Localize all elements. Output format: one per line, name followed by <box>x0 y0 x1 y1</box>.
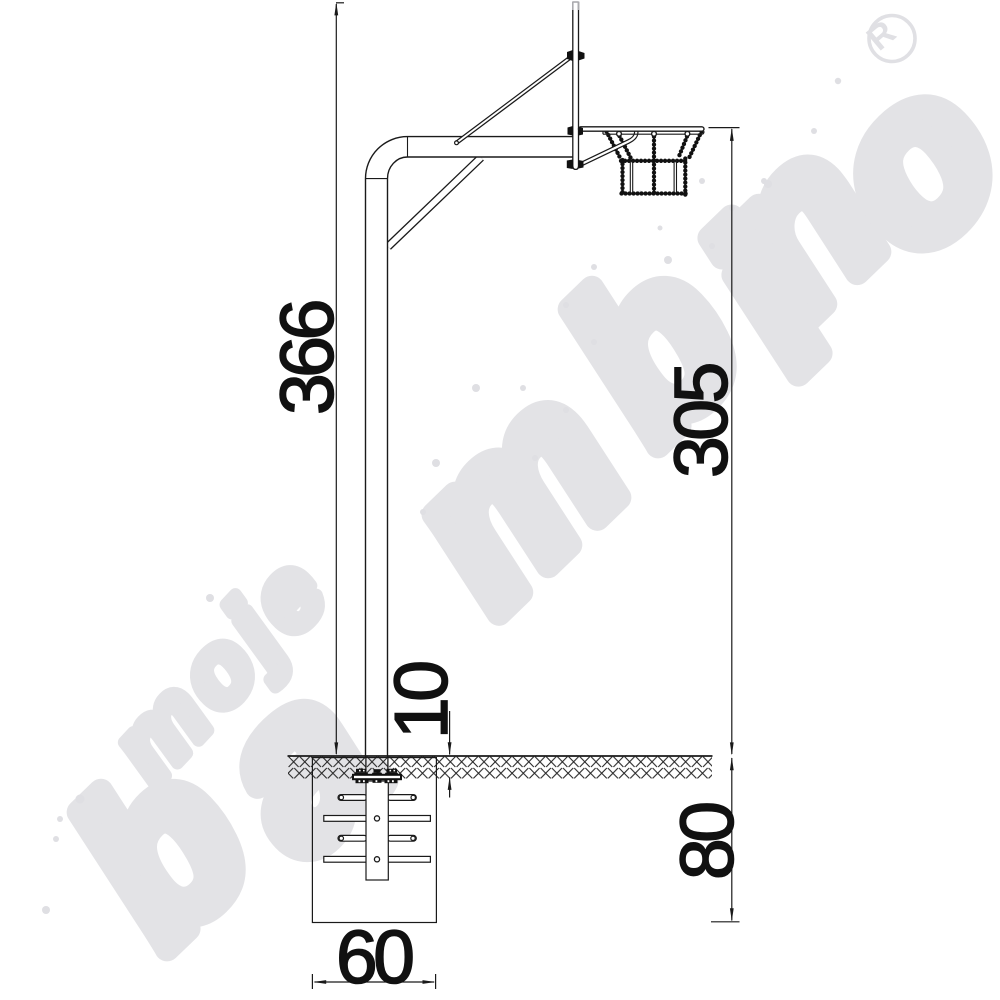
svg-text:305: 305 <box>659 364 743 478</box>
svg-text:366: 366 <box>265 301 349 415</box>
svg-text:80: 80 <box>665 804 749 880</box>
svg-text:60: 60 <box>336 915 412 999</box>
svg-text:10: 10 <box>379 663 463 739</box>
